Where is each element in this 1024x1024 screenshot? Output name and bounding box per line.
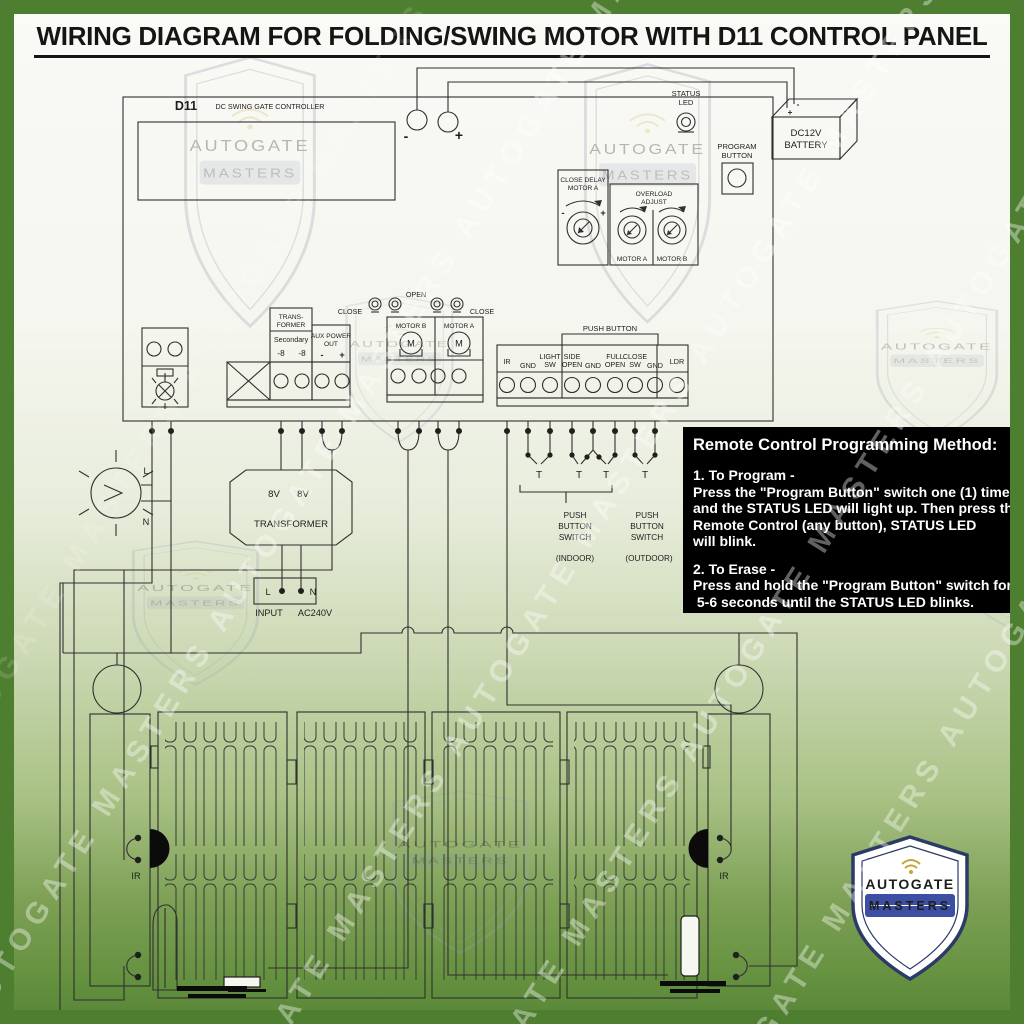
program-step-1-line: will blink.: [693, 533, 1010, 550]
svg-text:SW: SW: [629, 360, 641, 369]
svg-text:DC12V: DC12V: [791, 128, 823, 139]
svg-text:LDR: LDR: [670, 357, 684, 366]
svg-text:OPEN: OPEN: [406, 290, 426, 299]
right-ir-label: IR: [719, 871, 729, 881]
svg-text:CLOSE: CLOSE: [470, 307, 495, 316]
logo-sub-text: MASTERS: [869, 899, 951, 913]
svg-text:OUT: OUT: [324, 341, 338, 348]
push-button-switch-labels: PUSH BUTTON SWITCH (INDOOR) PUSH BUTTON …: [556, 511, 673, 563]
aux-power-block: AUX POWER OUT - +: [311, 325, 352, 400]
svg-text:AC240V: AC240V: [298, 608, 333, 618]
brand-logo: AUTOGATE MASTERS: [845, 833, 975, 985]
program-button: PROGRAM BUTTON: [717, 142, 756, 194]
svg-text:SWITCH: SWITCH: [559, 533, 591, 542]
svg-text:M: M: [455, 339, 463, 349]
svg-text:INPUT: INPUT: [255, 608, 283, 618]
programming-title: Remote Control Programming Method:: [693, 436, 1010, 455]
svg-text:OPEN: OPEN: [605, 360, 625, 369]
controller-name: DC SWING GATE CONTROLLER: [216, 102, 325, 111]
svg-text:BUTTON: BUTTON: [721, 151, 752, 160]
svg-text:MOTOR A: MOTOR A: [568, 185, 599, 192]
logo-brand-text: AUTOGATE: [865, 876, 954, 892]
program-step-2-head: 2. To Erase -: [693, 561, 1010, 578]
svg-text:T: T: [576, 470, 582, 481]
svg-text:CLOSE: CLOSE: [338, 307, 363, 316]
svg-text:BUTTON: BUTTON: [558, 522, 592, 531]
svg-text:(INDOOR): (INDOOR): [556, 554, 594, 563]
knob-arcs-icon: [620, 208, 684, 212]
svg-text:AUX POWER: AUX POWER: [311, 333, 352, 340]
page-title: WIRING DIAGRAM FOR FOLDING/SWING MOTOR W…: [0, 16, 1024, 58]
svg-text:MOTOR A: MOTOR A: [617, 256, 648, 263]
svg-text:TRANS-: TRANS-: [279, 314, 304, 321]
svg-text:-: -: [404, 128, 409, 144]
program-step-2-line: Press and hold the "Program Button" swit…: [693, 577, 1010, 594]
status-led-icon: [677, 113, 695, 131]
svg-text:PUSH: PUSH: [564, 511, 587, 520]
svg-text:T: T: [603, 470, 609, 481]
svg-text:CLOSE DELAY: CLOSE DELAY: [560, 177, 606, 184]
svg-text:-8: -8: [277, 349, 285, 358]
svg-text:BATTERY: BATTERY: [784, 140, 828, 151]
svg-text:GND: GND: [585, 361, 601, 370]
svg-text:MOTOR A: MOTOR A: [444, 323, 475, 330]
svg-text:8V: 8V: [268, 489, 280, 500]
program-button-icon: [728, 169, 746, 187]
svg-text:+: +: [455, 127, 463, 143]
svg-text:+: +: [600, 208, 605, 218]
svg-text:-: -: [797, 100, 800, 109]
svg-text:BUTTON: BUTTON: [630, 522, 664, 531]
right-pillar: [708, 714, 770, 986]
transformer-unit: 8V 8V TRANSFORMER L N INPUT AC240V: [230, 470, 352, 618]
left-pillar-lamp: [93, 665, 141, 713]
svg-text:-: -: [320, 350, 323, 360]
svg-text:+: +: [339, 350, 344, 360]
right-pillar-lamp: [715, 665, 763, 713]
svg-text:SW: SW: [544, 360, 556, 369]
svg-text:IR: IR: [503, 357, 510, 366]
controller-model: D11: [175, 99, 197, 113]
svg-text:PUSH: PUSH: [636, 511, 659, 520]
t-switch-labels: T T T T: [536, 470, 648, 481]
svg-text:GND: GND: [520, 361, 536, 370]
left-ir-label: IR: [131, 871, 141, 881]
svg-text:OPEN: OPEN: [562, 360, 582, 369]
status-led: STATUS LED: [672, 89, 701, 132]
svg-text:MOTOR B: MOTOR B: [657, 256, 688, 263]
svg-text:OVERLOAD: OVERLOAD: [636, 191, 673, 198]
transformer-secondary-block: TRANS- FORMER Secondary -8 -8: [270, 308, 312, 400]
svg-text:+: +: [788, 108, 793, 117]
svg-text:(OUTDOOR): (OUTDOOR): [625, 554, 673, 563]
lamp-output-block: [142, 328, 188, 409]
program-step-2-line: 5-6 seconds until the STATUS LED blinks.: [693, 594, 1010, 611]
svg-text:-8: -8: [298, 349, 306, 358]
battery-neg-wire: [417, 68, 794, 110]
left-pillar: [90, 714, 150, 986]
svg-text:8V: 8V: [297, 489, 309, 500]
board-battery-terminals: - +: [404, 110, 463, 144]
push-button-strip: PUSH BUTTON IR GND LIGHT SW SIDE OPEN GN…: [497, 324, 688, 406]
program-step-1-head: 1. To Program -: [693, 467, 1010, 484]
svg-text:N: N: [143, 517, 150, 527]
svg-text:PUSH BUTTON: PUSH BUTTON: [583, 324, 637, 333]
svg-text:LED: LED: [679, 98, 694, 107]
svg-text:SWITCH: SWITCH: [631, 533, 663, 542]
battery-12v: - + DC12V BATTERY: [772, 99, 857, 159]
svg-text:T: T: [642, 470, 648, 481]
programming-info-box: Remote Control Programming Method: 1. To…: [683, 427, 1010, 613]
svg-text:Secondary: Secondary: [274, 335, 309, 344]
svg-text:L: L: [143, 466, 148, 476]
svg-text:MOTOR B: MOTOR B: [396, 323, 427, 330]
lamp-icon: [91, 468, 141, 518]
svg-text:FORMER: FORMER: [277, 322, 306, 329]
program-step-1-line: Press the "Program Button" switch one (1…: [693, 484, 1010, 501]
svg-text:TRANSFORMER: TRANSFORMER: [254, 519, 328, 530]
svg-text:-: -: [561, 208, 564, 218]
svg-text:PROGRAM: PROGRAM: [717, 142, 756, 151]
program-step-1-line: and the STATUS LED will light up. Then p…: [693, 500, 1010, 517]
svg-text:T: T: [536, 470, 542, 481]
gates-drawing: IR IR: [90, 665, 770, 998]
wiring-diagram-page: WIRING DIAGRAM FOR FOLDING/SWING MOTOR W…: [0, 0, 1024, 1024]
program-step-1-line: Remote Control (any button), STATUS LED: [693, 517, 1010, 534]
svg-text:L: L: [265, 587, 270, 597]
svg-text:STATUS: STATUS: [672, 89, 701, 98]
right-ir-sensor: [689, 829, 709, 868]
external-lamp: L N: [79, 450, 153, 536]
svg-text:GND: GND: [647, 361, 663, 370]
crossed-terminal-block: [227, 362, 270, 400]
svg-text:N: N: [310, 587, 317, 597]
svg-text:M: M: [407, 339, 415, 349]
svg-text:ADJUST: ADJUST: [641, 199, 667, 206]
